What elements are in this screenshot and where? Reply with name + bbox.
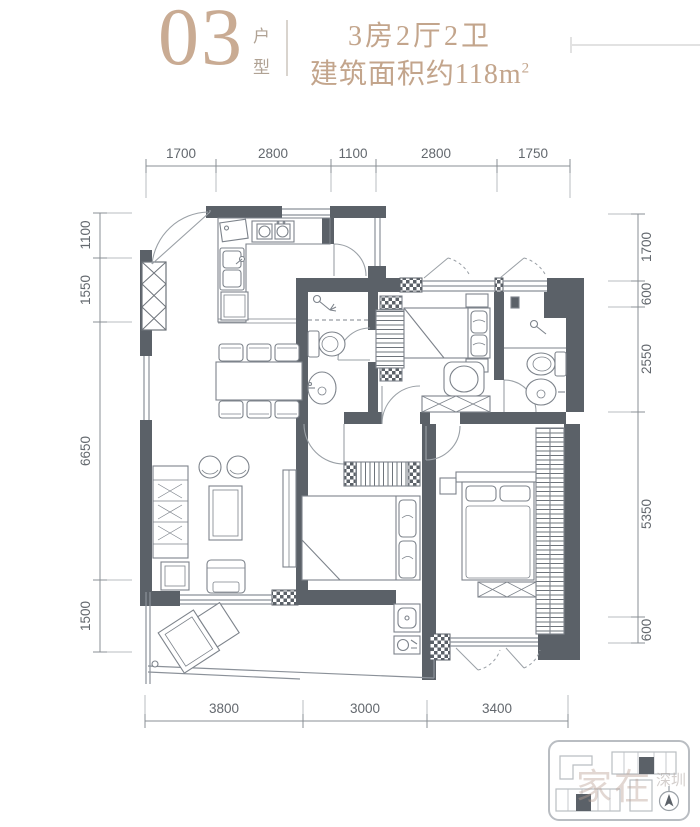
dim-top-3: 1100 [338, 146, 367, 161]
kitchen-stove [252, 221, 294, 242]
bedroomA-door-arc [382, 386, 420, 424]
keyplan-building-2 [612, 752, 676, 774]
keyplan-building-1 [560, 756, 592, 779]
living-stools [199, 456, 249, 478]
keyplan-building-4 [630, 780, 652, 811]
bedroomA-chair [444, 362, 484, 396]
side-table [161, 562, 189, 590]
bedroomB-wardrobe [344, 462, 420, 486]
dim-top-5: 1750 [518, 146, 548, 161]
bath1-sink [308, 372, 336, 404]
bath1-toilet [308, 331, 345, 357]
dim-left-4: 1500 [78, 601, 93, 631]
lounge-chair [158, 596, 241, 673]
washing-machine [394, 604, 420, 632]
entry-door-arc [152, 210, 210, 264]
master-bed [440, 472, 536, 580]
dim-bottom-2: 3000 [350, 701, 380, 716]
dim-left-2: 1550 [78, 275, 93, 305]
armchair [207, 560, 245, 593]
bedroomB-bed [302, 496, 420, 580]
bedroomB-door-arc [304, 424, 344, 464]
master-wardrobe [536, 428, 564, 634]
dim-top-4: 2800 [421, 146, 451, 161]
bedroomA-dresser [422, 396, 490, 412]
dim-right-5: 600 [639, 619, 654, 642]
dim-right-4: 5350 [639, 499, 654, 529]
walls [140, 206, 584, 680]
bedroomA-bed [404, 308, 490, 358]
kitchen-cabinet [221, 292, 248, 320]
kitchen-sink [220, 248, 245, 290]
kitchen-door-arc [334, 244, 366, 276]
sofa [153, 466, 188, 558]
bedroomA-closet [376, 296, 404, 381]
dim-right-2: 600 [639, 283, 654, 306]
compass-icon [660, 786, 679, 811]
dim-right-3: 2550 [639, 344, 654, 374]
left-shaft-box [142, 262, 166, 330]
dining-table [216, 362, 302, 400]
dim-top-1: 1700 [166, 146, 196, 161]
keyplan-building-3 [556, 789, 620, 811]
floorplan-page: { "header": { "unit_number": "03", "unit… [0, 0, 700, 827]
tv-cabinet [283, 470, 296, 567]
dim-bottom-1: 3800 [209, 701, 239, 716]
dim-left-3: 6650 [78, 436, 93, 466]
dim-right-1: 1700 [639, 232, 654, 262]
water-heater [394, 636, 420, 654]
floor-drain [152, 661, 158, 667]
kitchen-cutting-board [220, 219, 248, 241]
dim-bottom-3: 3400 [482, 701, 512, 716]
coffee-table [209, 486, 242, 540]
master-bench [478, 582, 536, 597]
dim-left-1: 1100 [78, 220, 93, 249]
bath1-shower [308, 296, 368, 321]
dim-top-2: 2800 [258, 146, 288, 161]
floorplan-drawing: 1700 2800 1100 2800 1750 3800 3000 3400 … [0, 0, 700, 827]
